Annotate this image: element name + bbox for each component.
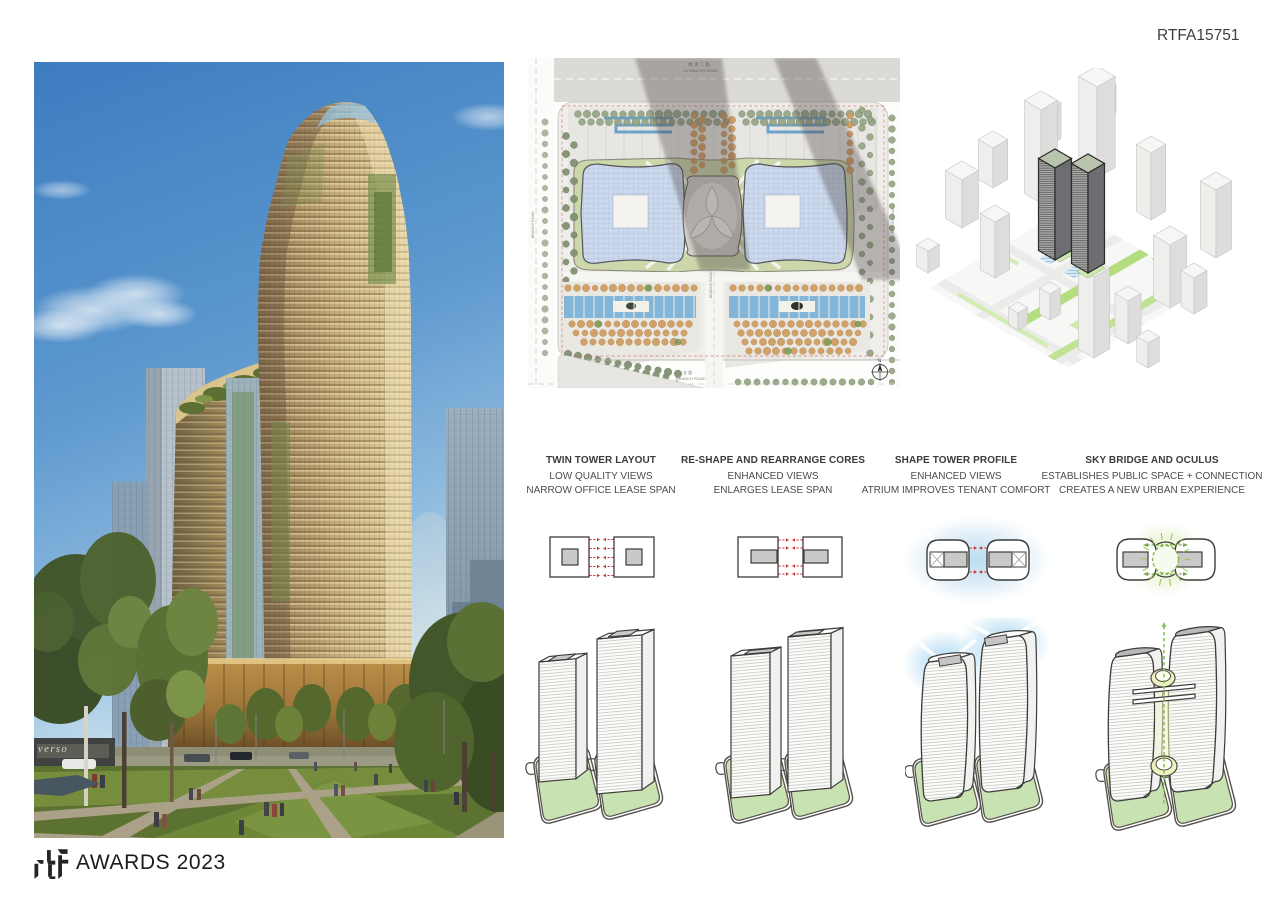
svg-text:verso: verso [38, 744, 68, 755]
svg-text:BRANCH ROAD: BRANCH ROAD [676, 376, 706, 381]
svg-text:N: N [878, 358, 881, 363]
svg-text:支 路: 支 路 [683, 369, 692, 375]
svg-text:BRANCH ROAD: BRANCH ROAD [709, 271, 713, 298]
svg-text:BRANCH ROAD: BRANCH ROAD [531, 211, 535, 238]
